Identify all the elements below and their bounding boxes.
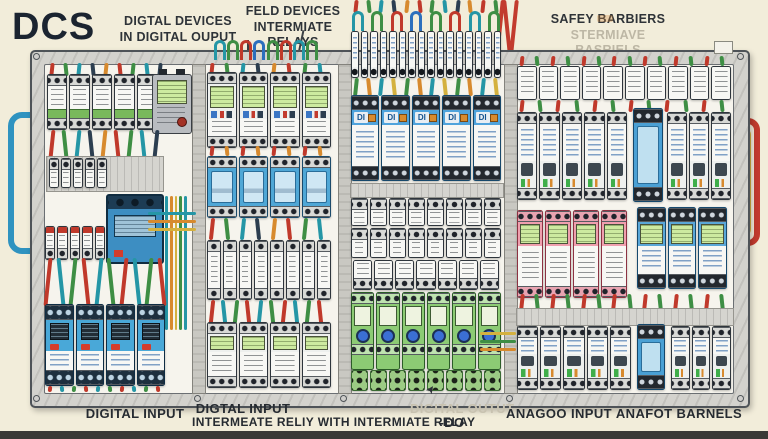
wire [49, 130, 56, 158]
wire [144, 386, 149, 392]
wire-loop [267, 40, 279, 60]
wire-bundle [354, 78, 498, 96]
wire [509, 0, 519, 54]
wire [404, 78, 410, 96]
wire-loop [280, 40, 292, 60]
narrow-relay-module [446, 228, 463, 258]
green-relay-module [402, 292, 425, 370]
terminal-module [517, 66, 537, 100]
pink-relay-module [517, 210, 543, 298]
wire [256, 146, 261, 156]
small-terminal-module [427, 198, 444, 226]
small-terminal-module [408, 198, 425, 226]
meter-module [302, 72, 332, 148]
horizontal-wire [148, 220, 196, 223]
small-terminal-module [353, 260, 372, 290]
din-rail [350, 183, 504, 198]
wire [145, 258, 154, 306]
dcs-panel-illustration: DCS DIGTAL DEVICES IN DIGITAL OUPUT FELD… [0, 0, 768, 439]
wire [257, 300, 264, 324]
pink-relay-module [573, 210, 599, 298]
wire [535, 56, 540, 66]
green-relay-module [478, 292, 501, 370]
small-terminal-module [459, 260, 478, 290]
wire [140, 130, 147, 158]
wire [665, 100, 670, 112]
terminal-block [437, 31, 445, 78]
narrow-relay-module [465, 228, 482, 258]
meter-lcd [157, 80, 187, 104]
pink-relay-row [516, 210, 628, 298]
wire [719, 100, 724, 112]
blue-module-slot [636, 324, 666, 390]
wire-loop [253, 40, 265, 60]
small-terminal-module [438, 260, 457, 290]
horizontal-wire [480, 332, 516, 335]
controller-red-button [114, 250, 123, 257]
bottom-border-band [0, 431, 768, 439]
meter-module [270, 72, 300, 148]
wire [271, 146, 276, 156]
wire [255, 218, 261, 240]
green-terminal-block [351, 370, 368, 391]
wire [612, 56, 617, 66]
horizontal-wire [148, 212, 196, 215]
blue-module-slot [632, 108, 664, 202]
wire [468, 78, 474, 96]
blue-relay-module [45, 304, 74, 386]
narrow-relay-module [408, 228, 425, 258]
wire-loop [391, 11, 403, 31]
terminal-module [603, 66, 623, 100]
meter-module-row [206, 72, 332, 148]
green-relay-row [350, 292, 502, 370]
wire-loops [214, 40, 318, 60]
green-terminal-block [484, 370, 501, 391]
wire [88, 130, 95, 158]
di-breaker-module: DI [442, 95, 470, 181]
wire [221, 300, 228, 324]
terminal-block [475, 31, 483, 78]
terminal-block [399, 31, 407, 78]
small-terminal-module [95, 226, 105, 260]
small-terminal-module [389, 198, 406, 226]
wire-loop [240, 40, 252, 60]
wire [673, 56, 678, 66]
terminal-block [418, 31, 426, 78]
blue-barrier-module [637, 324, 665, 390]
wire [610, 100, 615, 112]
wire [209, 300, 216, 324]
small-terminal-module [465, 198, 482, 226]
wire [84, 386, 89, 392]
dcs-title: DCS [12, 6, 95, 49]
wire-loop [469, 11, 481, 31]
wire [179, 196, 182, 330]
terminal-rail [516, 308, 734, 326]
power-meter-device [152, 74, 192, 134]
pink-relay-module [545, 210, 571, 298]
terminal-block [427, 31, 435, 78]
wire [287, 146, 292, 156]
wire-bundle [46, 258, 164, 306]
label-analog-input: ANAGOO INPUT [489, 406, 629, 421]
green-terminal-block [389, 370, 406, 391]
relay-display-module [207, 322, 237, 388]
terminal-block [494, 31, 502, 78]
small-terminal-module [395, 260, 414, 290]
wire-bundle [48, 386, 160, 392]
terminal-module [647, 66, 667, 100]
controller-connectors [108, 196, 162, 209]
label-analog-barriers: ANAFOT BARNELS [609, 406, 749, 421]
wire [293, 300, 300, 324]
wire [317, 146, 322, 156]
narrow-relay-module [370, 228, 387, 258]
wire [127, 130, 134, 158]
wire [493, 78, 499, 96]
narrow-relay-module [239, 240, 253, 300]
di-module-row: DI DI DI DI DI [350, 95, 502, 181]
green-relay-module [452, 292, 475, 370]
blue-breaker-module [207, 156, 237, 218]
wire [184, 196, 187, 330]
terminal-module [625, 66, 645, 100]
white-breaker-row [666, 112, 732, 200]
horizontal-wire [480, 348, 516, 351]
narrow-relay-module [317, 240, 331, 300]
wire [480, 78, 486, 96]
wire-loop [449, 11, 461, 31]
io-terminal-module [47, 74, 67, 130]
wire [114, 130, 121, 158]
wire [538, 100, 543, 112]
small-terminal-module [45, 226, 55, 260]
controller-screen [114, 215, 156, 237]
small-terminal-module [374, 260, 393, 290]
white-breaker-module [517, 112, 537, 200]
wire [225, 146, 230, 156]
white-breaker-module [610, 326, 631, 390]
bottom-breaker-row [516, 326, 632, 390]
terminal-block [380, 31, 388, 78]
wire [378, 78, 384, 96]
di-breaker-module: DI [473, 95, 501, 181]
blue-breaker-module [302, 156, 332, 218]
wire [281, 300, 288, 324]
wire [442, 78, 448, 96]
narrow-relay-module [389, 228, 406, 258]
jumper-loops [352, 11, 500, 31]
white-breaker-row [516, 112, 628, 200]
small-module-row [350, 198, 502, 226]
narrow-relay-module [207, 240, 221, 300]
wire-loop [371, 11, 383, 31]
terminal-block [351, 31, 359, 78]
small-terminal-module [82, 226, 92, 260]
wire-bundle [210, 300, 322, 324]
wire [94, 258, 103, 306]
label-digital-input-relay-2: INTERMEATE RELIY WITH INTERMIATE RELAY [192, 415, 438, 429]
terminal-block [446, 31, 454, 78]
blue-barrier-module [633, 108, 663, 202]
wire [120, 386, 125, 392]
white-breaker-module [517, 326, 538, 390]
label-digital-input-relay-1: DIGTAL INPUT [183, 401, 303, 416]
io-terminal-module [69, 74, 89, 130]
green-terminal-block [465, 370, 482, 391]
wire [48, 386, 53, 392]
wire [72, 386, 77, 392]
small-terminal-module [85, 158, 95, 188]
wire [353, 78, 359, 96]
blue-breaker-row [206, 156, 332, 218]
small-terminal-module [70, 226, 80, 260]
wire [56, 258, 65, 306]
di-breaker-module: DI [351, 95, 379, 181]
wire [108, 386, 113, 392]
di-breaker-module: DI [412, 95, 440, 181]
wire [302, 146, 307, 156]
small-terminal-module [49, 158, 59, 188]
white-breaker-module [539, 112, 559, 200]
green-terminal-block [446, 370, 463, 391]
wire [550, 56, 555, 66]
terminal-module [668, 66, 688, 100]
green-relay-module [427, 292, 450, 370]
terminal-block [361, 31, 369, 78]
label-digital-output-do: -DO [410, 415, 494, 430]
wire [596, 56, 601, 66]
small-module-row [48, 158, 108, 188]
wire-loop [352, 11, 364, 31]
wire [417, 78, 423, 96]
screw [33, 395, 40, 402]
relay-display-module [302, 322, 332, 388]
wire [101, 130, 108, 158]
wire [574, 100, 579, 112]
wire-loop [410, 11, 422, 31]
small-terminal-module [97, 158, 107, 188]
wire [170, 196, 173, 330]
terminal-strip-row [350, 31, 502, 78]
green-terminal-block [370, 370, 387, 391]
wire [592, 100, 597, 112]
narrow-relay-module [270, 240, 284, 300]
horizontal-wire [480, 340, 516, 343]
di-label: DI [415, 112, 429, 123]
terminal-block [484, 31, 492, 78]
wire [62, 130, 69, 158]
screw [33, 53, 40, 60]
wire [366, 78, 372, 96]
vertical-wire-bundle [164, 196, 188, 330]
wire [391, 78, 397, 96]
wire [233, 300, 240, 324]
narrow-relay-row [206, 240, 332, 300]
small-module-row [44, 226, 106, 260]
meter-module [207, 72, 237, 148]
blue-breaker-module [270, 156, 300, 218]
wire [689, 56, 694, 66]
wire [69, 258, 78, 306]
wire [107, 258, 116, 306]
blue-breaker-module [239, 156, 269, 218]
wire [642, 56, 647, 66]
narrow-relay-module [254, 240, 268, 300]
di-breaker-module: DI [381, 95, 409, 181]
narrow-relay-module [351, 228, 368, 258]
wire [556, 100, 561, 112]
pink-relay-module [601, 210, 627, 298]
terminal-module [560, 66, 580, 100]
wire-bundle [50, 130, 158, 158]
io-terminal-module [114, 74, 134, 130]
wire [132, 386, 137, 392]
wire [240, 146, 245, 156]
wire [245, 300, 252, 324]
wire [719, 56, 724, 66]
wire [119, 258, 128, 306]
meter-red-button [177, 117, 187, 127]
di-label: DI [445, 112, 459, 123]
wire-bundle [520, 56, 724, 66]
terminal-module [711, 66, 731, 100]
white-breaker-module [689, 112, 709, 200]
di-label: DI [354, 112, 368, 123]
white-breaker-module [711, 112, 731, 200]
blue-relay-module [137, 304, 166, 386]
wire [566, 56, 571, 66]
small-terminal-module [370, 198, 387, 226]
small-terminal-module [57, 226, 67, 260]
narrow-relay-row [350, 228, 502, 258]
blue-relay-row [44, 304, 166, 386]
terminal-module [690, 66, 710, 100]
terminal-module [582, 66, 602, 100]
blue-relay-module [106, 304, 135, 386]
wire-loop [306, 40, 318, 60]
terminal-block [456, 31, 464, 78]
small-module-row [352, 260, 500, 290]
di-label: DI [476, 112, 490, 123]
wire [519, 56, 524, 66]
blue-lcd-module [698, 207, 727, 289]
frame-label-tag [714, 41, 733, 54]
wire [175, 196, 178, 330]
wire-loop [214, 40, 226, 60]
blue-lcd-row [636, 207, 728, 289]
white-breaker-module [607, 112, 627, 200]
green-relay-module [376, 292, 399, 370]
wire [429, 78, 435, 96]
wire-loop [293, 40, 305, 60]
terminal-block [389, 31, 397, 78]
white-breaker-module [671, 326, 690, 390]
small-terminal-module [351, 198, 368, 226]
wire [658, 56, 663, 66]
narrow-relay-module [427, 228, 444, 258]
wire [96, 386, 101, 392]
faint-orange-smudge [597, 15, 613, 22]
meter-module [239, 72, 269, 148]
wire [75, 130, 82, 158]
wire [269, 300, 276, 324]
terminal-module [539, 66, 559, 100]
white-breaker-module [540, 326, 561, 390]
wire-bundle [520, 100, 724, 112]
wire-bundle [210, 218, 322, 240]
wire [683, 100, 688, 112]
terminal-block [370, 31, 378, 78]
white-breaker-module [667, 112, 687, 200]
white-breaker-module [563, 326, 584, 390]
wire [301, 218, 307, 240]
wire [271, 218, 277, 240]
white-breaker-module [692, 326, 711, 390]
io-terminal-module [92, 74, 112, 130]
small-terminal-module [416, 260, 435, 290]
wire-loop [430, 11, 442, 31]
meter-terminals [159, 69, 185, 75]
wire-loop [488, 11, 500, 31]
screw [340, 395, 347, 402]
wire [60, 386, 65, 392]
blue-lcd-module [668, 207, 697, 289]
screw [737, 395, 744, 402]
blue-lcd-module [637, 207, 666, 289]
narrow-relay-module [223, 240, 237, 300]
narrow-relay-module [302, 240, 316, 300]
terminal-block [408, 31, 416, 78]
small-terminal-module [446, 198, 463, 226]
wire [455, 78, 461, 96]
screw [737, 53, 744, 60]
wire [240, 218, 246, 240]
wire [209, 146, 214, 156]
small-terminal-module [73, 158, 83, 188]
terminal-block [465, 31, 473, 78]
green-relay-module [351, 292, 374, 370]
wire [519, 100, 524, 112]
white-breaker-module [712, 326, 731, 390]
wire [224, 218, 230, 240]
top-terminal-row [516, 66, 732, 100]
small-terminal-module [484, 198, 501, 226]
wire [581, 56, 586, 66]
blue-relay-module [76, 304, 105, 386]
wire [704, 56, 709, 66]
narrow-relay-module [286, 240, 300, 300]
narrow-relay-module [484, 228, 501, 258]
white-breaker-module [587, 326, 608, 390]
white-breaker-module [562, 112, 582, 200]
wire [132, 258, 141, 306]
horizontal-wire [148, 228, 196, 231]
white-breaker-module [584, 112, 604, 200]
relay-display-module [239, 322, 269, 388]
wire [627, 56, 632, 66]
relay-display-module [270, 322, 300, 388]
wire [156, 386, 161, 392]
wire [209, 218, 215, 240]
relay-with-display-row [206, 322, 332, 388]
small-terminal-module [61, 158, 71, 188]
wire-bundle [210, 146, 322, 156]
io-module-row [46, 74, 158, 130]
wire [81, 258, 90, 306]
di-label: DI [384, 112, 398, 123]
